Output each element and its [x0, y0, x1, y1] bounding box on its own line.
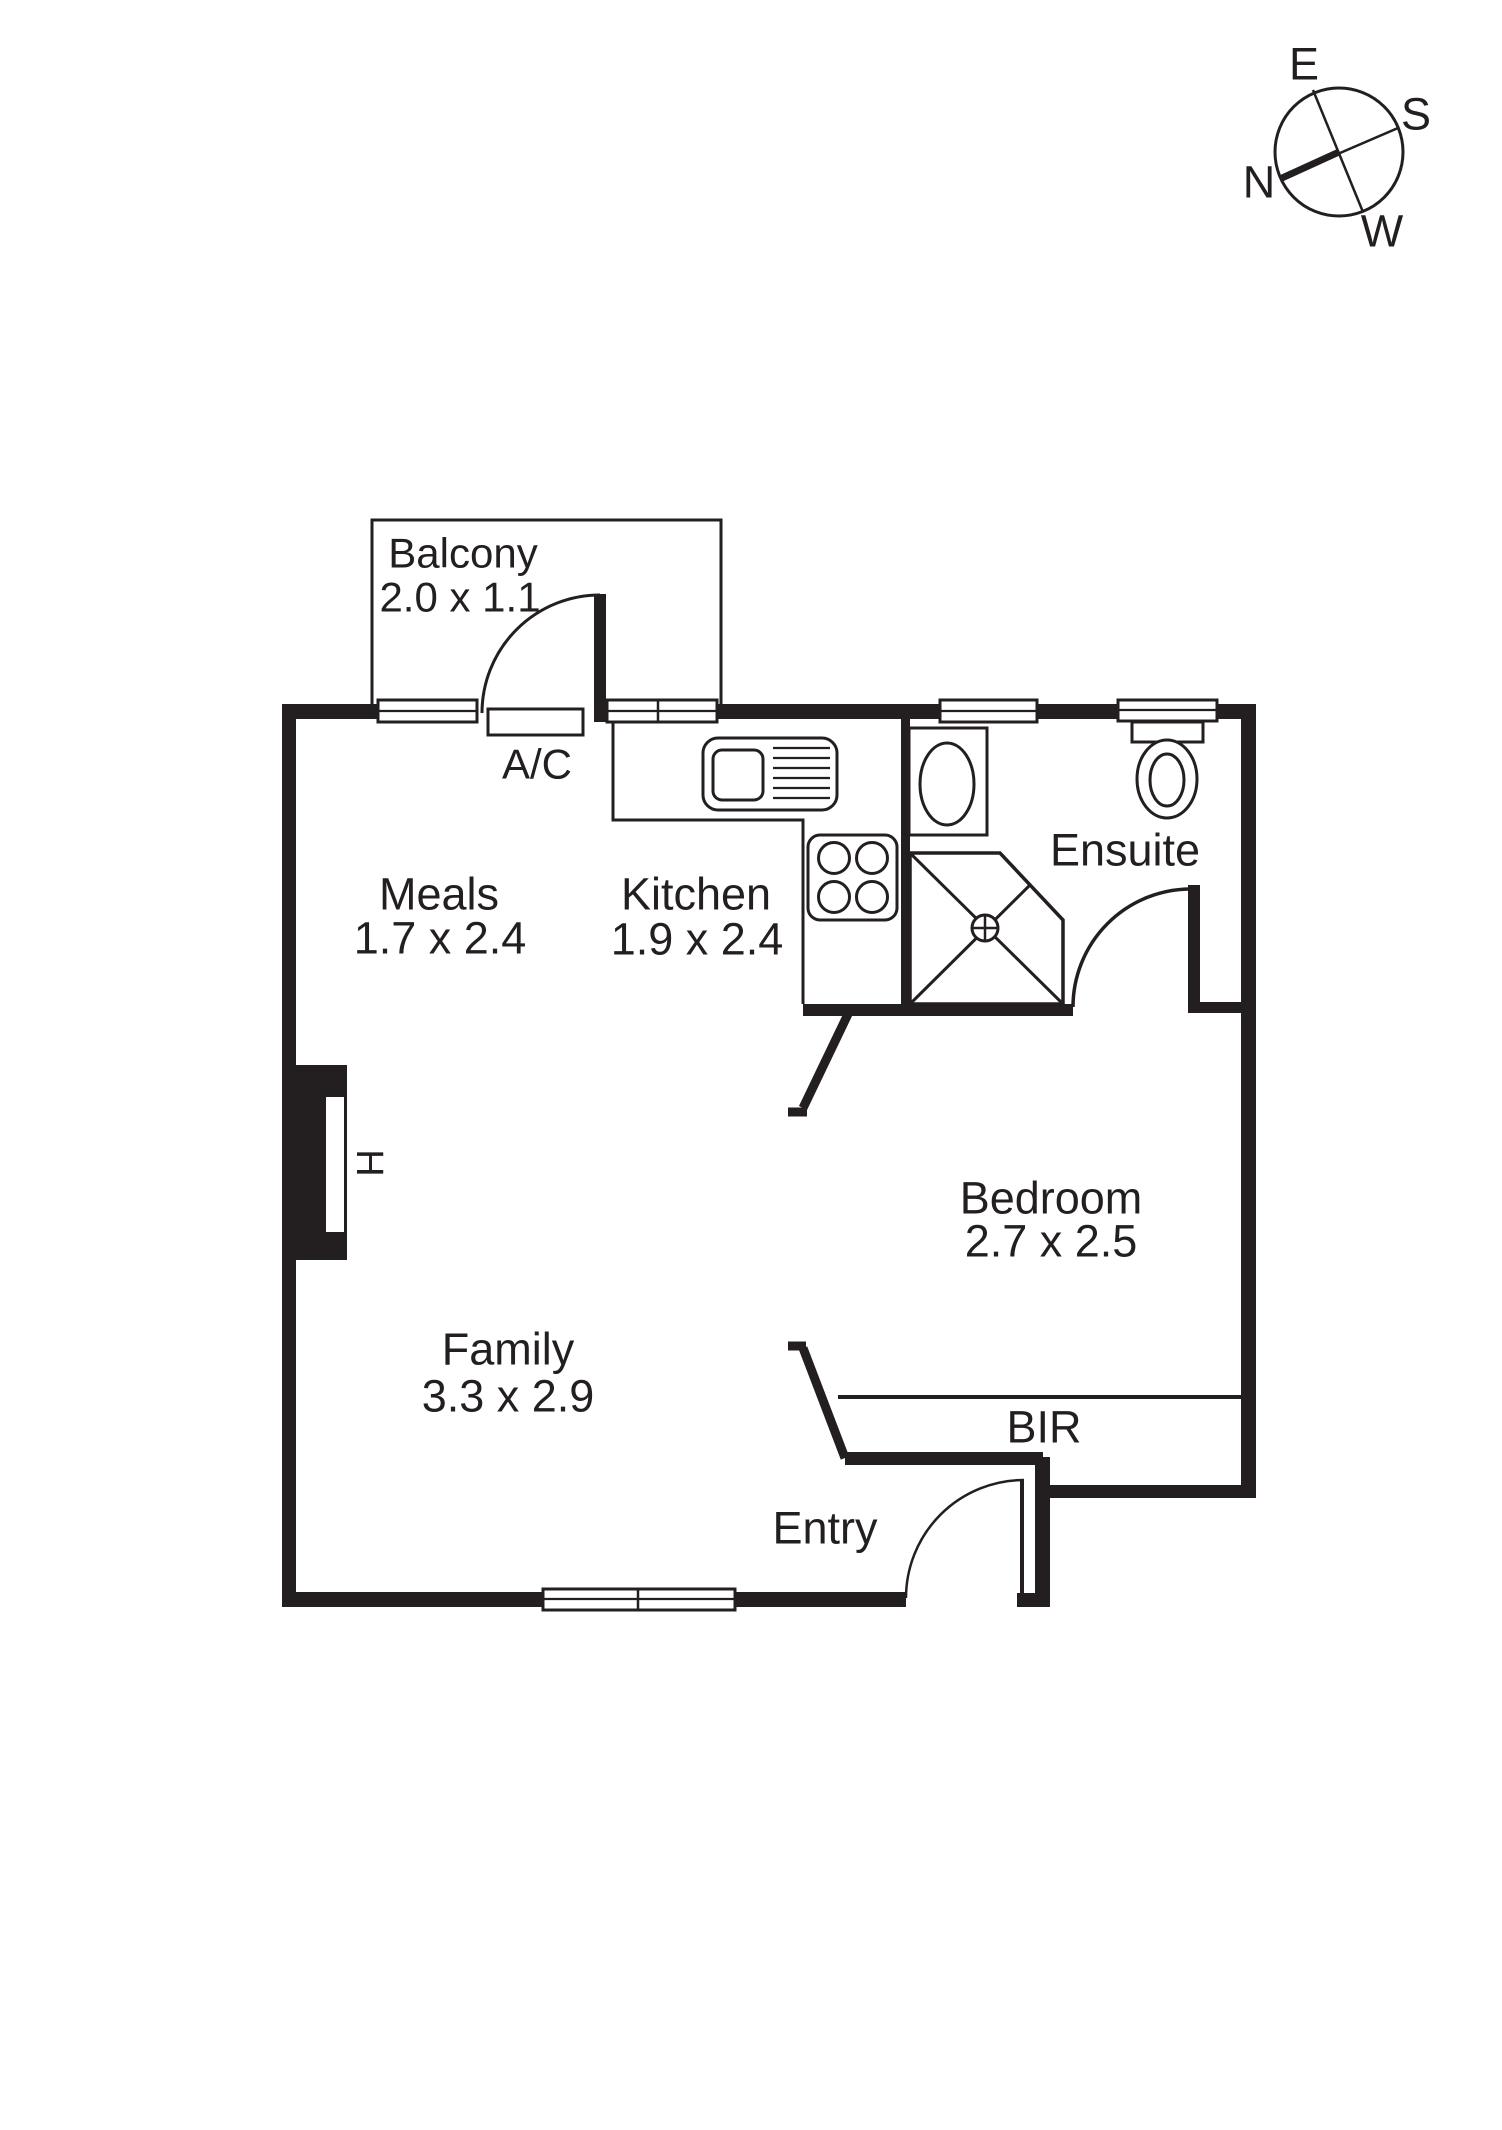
window-ensuite-right — [1118, 700, 1217, 721]
window-balcony-left — [378, 700, 477, 722]
compass-rose: E S N W — [1243, 39, 1431, 257]
wall-heater: H — [296, 1065, 390, 1260]
stove-cooktop-icon — [808, 835, 897, 920]
entry-door-hinge-foot — [1017, 1593, 1036, 1607]
compass-label-west: W — [1361, 206, 1404, 257]
window-kitchen — [607, 700, 717, 722]
wall-bottom-middle — [735, 1592, 906, 1607]
ensuite-door — [1073, 889, 1191, 1007]
heater-label: H — [348, 1149, 390, 1176]
balcony-dims-label: 2.0 x 1.1 — [379, 574, 540, 621]
balcony-name-label: Balcony — [388, 530, 537, 577]
entry-door — [906, 1480, 1036, 1607]
compass-label-east: E — [1289, 39, 1319, 90]
window-ensuite-left — [940, 700, 1037, 722]
bedroom-dims-label: 2.7 x 2.5 — [965, 1216, 1138, 1267]
wall-top-ensuite — [1037, 704, 1118, 719]
vanity-basin-icon — [909, 728, 987, 835]
ac-label: A/C — [502, 741, 572, 788]
room-labels: Balcony 2.0 x 1.1 A/C Meals 1.7 x 2.4 Ki… — [354, 530, 1200, 1554]
wall-left — [282, 704, 296, 1607]
bedroom-doorway-leaf-lower — [803, 1348, 845, 1458]
shower-icon — [910, 853, 1063, 1004]
window-family — [543, 1589, 735, 1610]
wall-top-left — [282, 704, 378, 719]
compass-label-north: N — [1243, 157, 1276, 208]
balcony-door-leaf — [594, 594, 606, 722]
entry-label: Entry — [772, 1503, 878, 1554]
entry-door-swing-arc — [906, 1480, 1024, 1598]
wall-top-middle — [717, 704, 940, 719]
heater-panel-slot — [326, 1097, 344, 1232]
floorplan-drawing: E S N W — [0, 0, 1502, 2125]
ensuite-name-label: Ensuite — [1050, 825, 1200, 876]
wall-right — [1241, 704, 1256, 1498]
compass-north-pointer — [1282, 152, 1339, 178]
kitchen-name-label: Kitchen — [621, 869, 771, 920]
bedroom-doorway — [788, 1012, 849, 1458]
wall-bir-bottom-right — [1050, 1485, 1256, 1498]
wall-bir-bottom-left — [845, 1452, 1043, 1465]
family-dims-label: 3.3 x 2.9 — [422, 1371, 595, 1422]
compass-label-south: S — [1401, 89, 1431, 140]
floorplan-page: E S N W — [0, 0, 1502, 2125]
bir-label: BIR — [1006, 1402, 1081, 1453]
wall-bottom-left — [296, 1592, 543, 1607]
ac-unit-icon — [488, 709, 583, 735]
wall-entry-stub — [1035, 1457, 1050, 1607]
meals-dims-label: 1.7 x 2.4 — [354, 913, 527, 964]
wall-ensuite-door-nib — [1188, 885, 1200, 1013]
bedroom-doorway-leaf-upper — [803, 1012, 849, 1108]
kitchen-dims-label: 1.9 x 2.4 — [611, 914, 784, 965]
family-name-label: Family — [442, 1324, 575, 1375]
kitchen-sink-icon — [703, 738, 837, 810]
ensuite-door-swing-arc — [1073, 889, 1191, 1007]
toilet-icon — [1132, 722, 1203, 818]
